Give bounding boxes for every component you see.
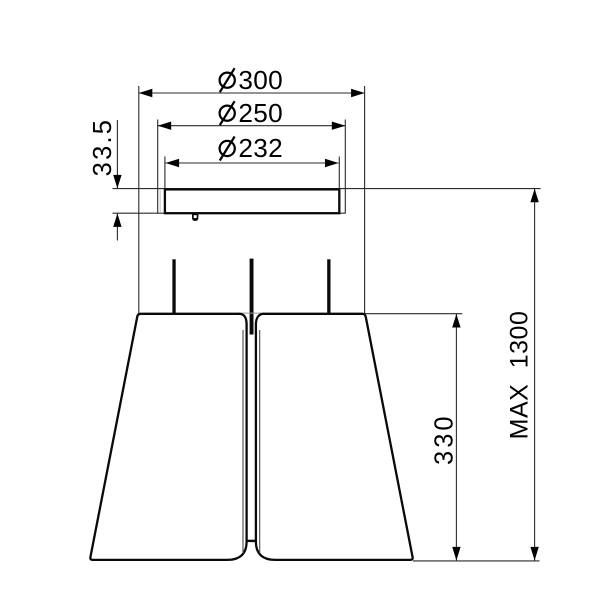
svg-text:300: 300 xyxy=(238,65,283,95)
svg-text:232: 232 xyxy=(238,133,283,163)
svg-text:33.5: 33.5 xyxy=(89,118,117,176)
svg-text:330: 330 xyxy=(430,413,458,465)
svg-text:MAX 1300: MAX 1300 xyxy=(505,311,533,440)
svg-text:250: 250 xyxy=(238,98,283,128)
